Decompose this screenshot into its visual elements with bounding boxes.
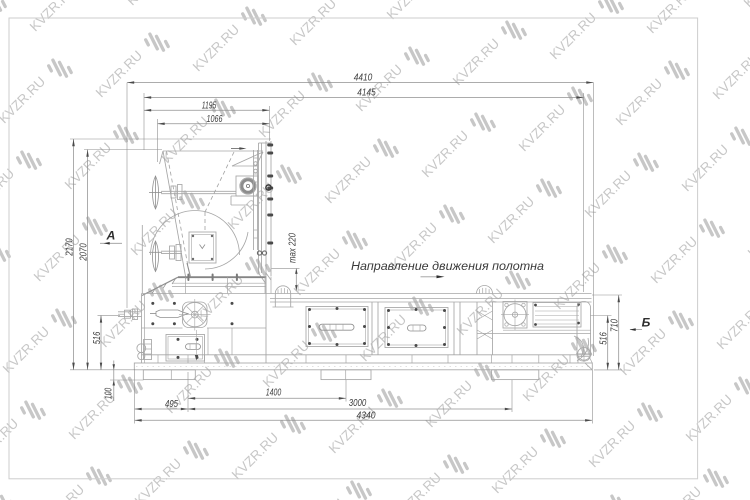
svg-text:KVZR.RU: KVZR.RU [516, 102, 569, 155]
svg-text:Б: Б [642, 316, 651, 330]
svg-text:KVZR.RU: KVZR.RU [128, 206, 181, 259]
svg-text:516: 516 [598, 332, 609, 345]
svg-text:KVZR.RU: KVZR.RU [159, 114, 212, 167]
svg-text:100: 100 [103, 387, 114, 399]
svg-text:KVZR.RU: KVZR.RU [27, 0, 80, 34]
svg-text:KVZR.RU: KVZR.RU [291, 246, 344, 299]
svg-text:KVZR.RU: KVZR.RU [260, 338, 313, 391]
svg-text:2170: 2170 [65, 238, 76, 257]
svg-text:KVZR.RU: KVZR.RU [0, 324, 52, 377]
svg-text:KVZR.RU: KVZR.RU [93, 48, 146, 101]
svg-text:KVZR.RU: KVZR.RU [190, 22, 243, 75]
svg-text:KVZR.RU: KVZR.RU [648, 234, 701, 287]
svg-text:KVZR.RU: KVZR.RU [520, 352, 573, 405]
svg-text:516: 516 [92, 331, 103, 344]
svg-text:495: 495 [165, 399, 178, 410]
svg-text:2070: 2070 [79, 243, 90, 262]
svg-text:KVZR.RU: KVZR.RU [132, 456, 185, 500]
svg-text:KVZR.RU: KVZR.RU [450, 36, 503, 89]
svg-text:KVZR.RU: KVZR.RU [357, 312, 410, 365]
svg-text:KVZR.RU: KVZR.RU [384, 0, 437, 22]
svg-text:KVZR.RU: KVZR.RU [679, 142, 732, 195]
svg-text:KVZR.RU: KVZR.RU [35, 482, 88, 500]
svg-text:KVZR.RU: KVZR.RU [551, 260, 604, 313]
svg-text:4340: 4340 [357, 410, 376, 421]
svg-text:KVZR.RU: KVZR.RU [613, 76, 666, 129]
svg-text:4145: 4145 [357, 87, 376, 98]
svg-text:KVZR.RU: KVZR.RU [256, 88, 309, 141]
svg-text:1400: 1400 [266, 388, 282, 399]
svg-text:4410: 4410 [354, 72, 373, 83]
svg-text:KVZR.RU: KVZR.RU [741, 0, 750, 10]
svg-text:710: 710 [609, 319, 620, 332]
svg-text:KVZR.RU: KVZR.RU [586, 418, 639, 471]
svg-text:KVZR.RU: KVZR.RU [287, 0, 340, 48]
svg-text:KVZR.RU: KVZR.RU [0, 416, 21, 469]
svg-text:max 220: max 220 [288, 233, 299, 263]
svg-text:А: А [106, 229, 116, 243]
svg-text:1066: 1066 [207, 114, 223, 125]
svg-text:KVZR.RU: KVZR.RU [683, 392, 736, 445]
svg-text:KVZR.RU: KVZR.RU [745, 208, 750, 261]
svg-text:KVZR.RU: KVZR.RU [714, 300, 750, 353]
svg-text:KVZR.RU: KVZR.RU [62, 140, 115, 193]
svg-text:KVZR.RU: KVZR.RU [419, 128, 472, 181]
svg-text:KVZR.RU: KVZR.RU [423, 378, 476, 431]
svg-text:KVZR.RU: KVZR.RU [710, 50, 750, 103]
svg-text:KVZR.RU: KVZR.RU [124, 0, 177, 8]
svg-text:KVZR.RU: KVZR.RU [0, 74, 48, 127]
svg-text:KVZR.RU: KVZR.RU [485, 194, 538, 247]
svg-text:KVZR.RU: KVZR.RU [582, 168, 635, 221]
svg-text:3000: 3000 [349, 398, 367, 409]
svg-text:KVZR.RU: KVZR.RU [295, 496, 348, 500]
svg-text:KVZR.RU: KVZR.RU [229, 430, 282, 483]
svg-text:Направление движения полотна: Направление движения полотна [351, 259, 544, 273]
svg-text:1195: 1195 [202, 101, 217, 112]
svg-text:KVZR.RU: KVZR.RU [322, 154, 375, 207]
svg-text:KVZR.RU: KVZR.RU [489, 444, 542, 497]
svg-text:KVZR.RU: KVZR.RU [194, 272, 247, 325]
svg-text:KVZR.RU: KVZR.RU [652, 484, 705, 500]
svg-text:KVZR.RU: KVZR.RU [617, 326, 670, 379]
svg-text:KVZR.RU: KVZR.RU [392, 470, 445, 500]
